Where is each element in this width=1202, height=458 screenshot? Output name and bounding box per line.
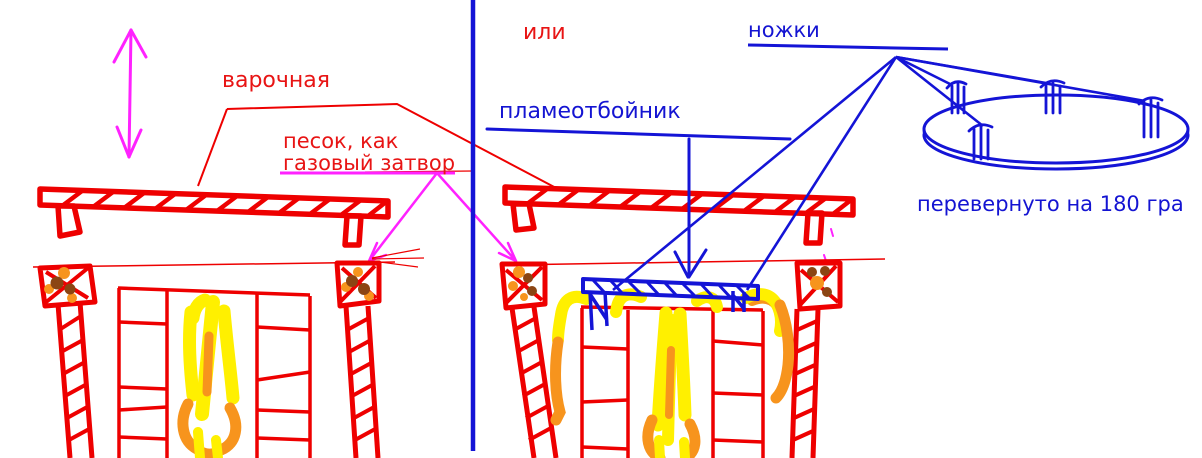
legs-underline (748, 45, 948, 49)
label-legs: ножки (748, 18, 820, 42)
left-stove-left-column (40, 266, 95, 458)
left-stove-right-column (337, 263, 379, 458)
inverted-lid-sketch (924, 81, 1188, 169)
height-double-arrow-icon (114, 30, 146, 157)
left-stove-hotplate (40, 189, 388, 245)
lid-leg-back-center (1041, 81, 1064, 113)
paint-drawing-canvas: варочная песок, как газовый затвор или п… (0, 0, 1202, 458)
right-stove-sketch (502, 187, 885, 458)
label-sand-line1: песок, как (283, 129, 398, 153)
label-flame-deflector: пламеотбойник (499, 99, 681, 124)
left-stove-flame (183, 300, 236, 458)
label-sand-line2: газовый затвор (283, 151, 455, 175)
label-flipped-180: перевернуто на 180 гра (917, 192, 1184, 216)
left-stove-sketch (33, 189, 395, 458)
sketch-svg: варочная песок, как газовый затвор или п… (0, 0, 1202, 458)
sand-arrows (369, 173, 833, 261)
right-stove-right-column (792, 263, 840, 458)
label-cooking-surface: варочная (222, 68, 330, 93)
label-or: или (523, 20, 566, 45)
